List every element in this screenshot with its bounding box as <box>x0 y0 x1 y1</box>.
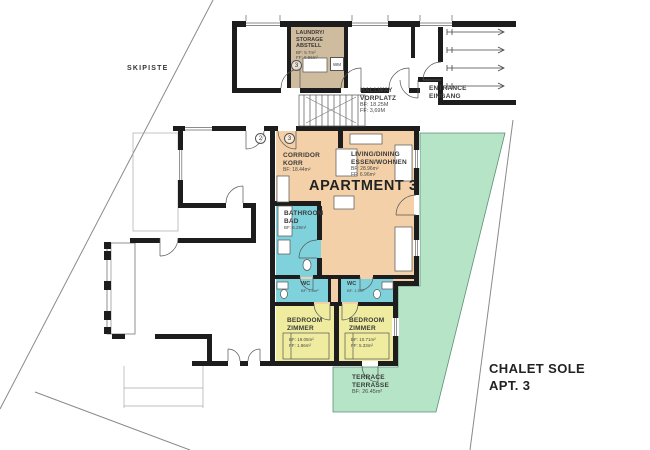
room-name-line: LIVING/DINING <box>351 151 407 159</box>
project-title-line1: CHALET SOLE <box>489 360 585 377</box>
room-name-line: ABSTELL <box>296 43 324 50</box>
room-name-line: VORPLATZ <box>360 95 396 103</box>
apartment-title: APARTMENT 3 <box>309 178 418 194</box>
room-area-line: FF: 1.86m² <box>289 343 314 349</box>
room-name-line: ZIMMER <box>287 325 322 333</box>
room-area-line: FF: 5.33m² <box>351 343 376 349</box>
skipiste-label: SKIPISTE <box>127 65 169 72</box>
room-name-line: KORR <box>283 160 320 168</box>
entrance-label: ENTRANCE EINGANG <box>429 85 467 100</box>
room-name-line: BEDROOM <box>287 317 322 325</box>
door-marker-3: 3 <box>284 133 295 144</box>
laundry-room-label: LAUNDRY/ STORAGE ABSTELL BF: 5.7m² FF: 0… <box>296 30 324 61</box>
room-name-line: HALLWAY <box>360 87 396 95</box>
corridor-label: CORRIDOR KORR BF: 18.44m² <box>283 152 320 173</box>
room-area-line: BF: 19.05m² <box>289 337 314 343</box>
room-name-line: TERRASSE <box>352 382 389 390</box>
bedroom-left-label: BEDROOM ZIMMER <box>287 317 322 332</box>
room-area-line: FF: 0.96m² <box>296 55 324 61</box>
project-title-line2: APT. 3 <box>489 377 585 394</box>
thin-outlines <box>124 133 203 408</box>
room-area-line: BF: 18.44m² <box>283 167 320 173</box>
room-area-line: BF: 26.45m² <box>352 389 389 395</box>
room-name-line: BEDROOM <box>349 317 384 325</box>
hallway-label: HALLWAY VORPLATZ BF: 18.25M FF: 3,69M <box>360 87 396 114</box>
terrace-label: TERRACE TERRASSE BF: 26.45m² <box>352 374 389 395</box>
room-name-line: EINGANG <box>429 93 467 101</box>
room-area-line: BF: 10.71m² <box>351 337 376 343</box>
wc-right-label: WC BF: 1.5m² <box>347 281 365 293</box>
room-name-line: BAD <box>284 218 323 226</box>
wc-left-label: WC BF: 1.5m² <box>301 281 319 293</box>
room-name-line: ZIMMER <box>349 325 384 333</box>
bedroom-right-fill <box>339 304 396 361</box>
bedroom-left-area-label: BF: 19.05m² FF: 1.86m² <box>289 337 314 348</box>
laundry-marker: 3 <box>291 60 302 71</box>
project-title: CHALET SOLE APT. 3 <box>489 360 585 394</box>
room-name-line: LAUNDRY/ <box>296 30 324 37</box>
room-name-line: ESSEN/WOHNEN <box>351 159 407 167</box>
door-marker-2: 2 <box>255 133 266 144</box>
room-name-line: BATHROOM <box>284 210 323 218</box>
floor-plan-canvas: SKIPISTE LAUNDRY/ STORAGE ABSTELL BF: 5.… <box>0 0 650 450</box>
room-area-line: FF: 3,69M <box>360 108 396 114</box>
bedroom-right-area-label: BF: 10.71m² FF: 5.33m² <box>351 337 376 348</box>
entrance-steps <box>447 29 504 89</box>
room-area-line: BF: 1.5m² <box>347 288 365 294</box>
bedroom-left-fill <box>276 304 334 361</box>
room-area-line: BF: 6.28m² <box>284 225 323 231</box>
room-name-line: CORRIDOR <box>283 152 320 160</box>
room-area-line: BF: 1.5m² <box>301 288 319 294</box>
bathroom-label: BATHROOM BAD BF: 6.28m² <box>284 210 323 231</box>
living-dining-label: LIVING/DINING ESSEN/WOHNEN BF: 28.96m² F… <box>351 151 407 178</box>
room-name-line: ENTRANCE <box>429 85 467 93</box>
room-name-line: TERRACE <box>352 374 389 382</box>
bedroom-right-label: BEDROOM ZIMMER <box>349 317 384 332</box>
washing-machine-box: WM <box>330 57 344 71</box>
staircase <box>299 95 365 126</box>
